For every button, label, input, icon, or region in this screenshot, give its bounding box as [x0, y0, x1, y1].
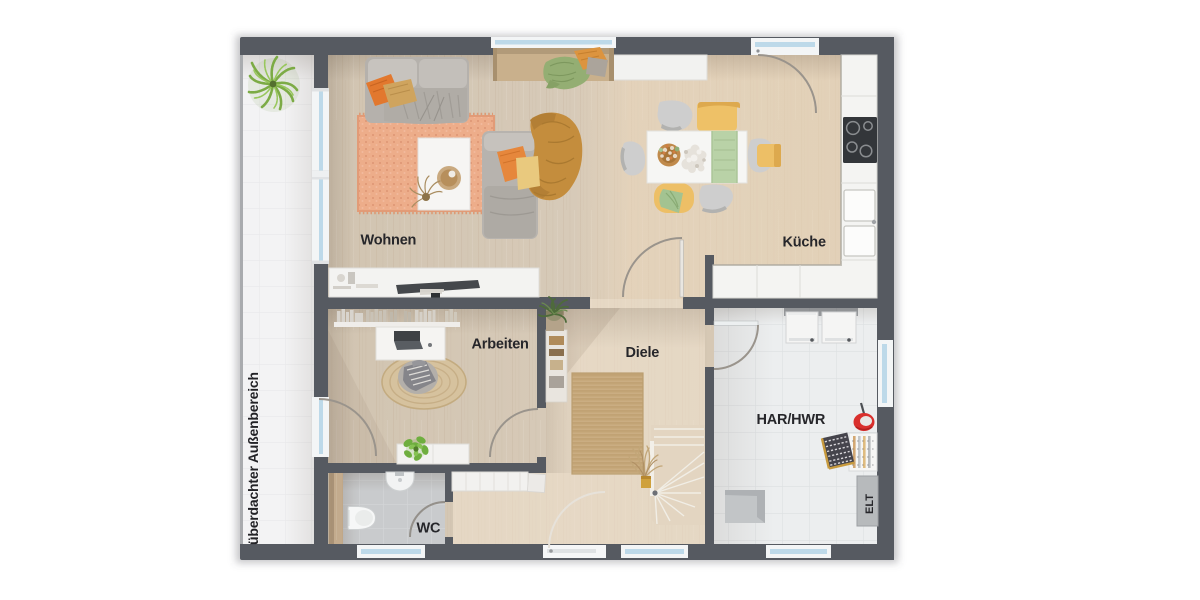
svg-text:ELT: ELT: [864, 494, 876, 514]
svg-text:Küche: Küche: [783, 235, 826, 251]
svg-text:Diele: Diele: [626, 345, 660, 361]
svg-text:überdachter Außenbereich: überdachter Außenbereich: [245, 372, 261, 545]
svg-text:Wohnen: Wohnen: [361, 233, 417, 249]
svg-text:WC: WC: [417, 521, 441, 537]
svg-text:Arbeiten: Arbeiten: [472, 337, 529, 353]
svg-text:HAR/HWR: HAR/HWR: [757, 412, 826, 428]
